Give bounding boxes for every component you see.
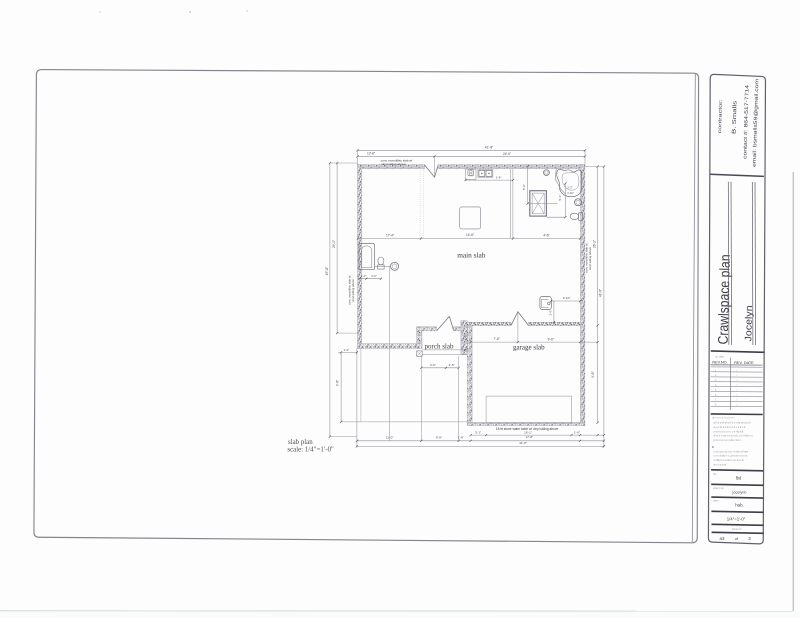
svg-text:11′-0″: 11′-0″ <box>386 435 395 439</box>
svg-text:no. date: no. date <box>715 355 725 358</box>
svg-text:1′-2″: 1′-2″ <box>361 274 367 278</box>
svg-text:17′-8″: 17′-8″ <box>525 435 534 439</box>
svg-text:1′-10″: 1′-10″ <box>567 191 574 195</box>
svg-text:a n y w o rk .: a n y w o rk . <box>714 463 728 466</box>
svg-text:2′-2″: 2′-2″ <box>371 274 377 278</box>
svg-text:4′-6″: 4′-6″ <box>430 363 436 367</box>
svg-text:1′-6″: 1′-6″ <box>463 335 467 340</box>
svg-text:a ll w o rk sh a ll c o n fo: a ll w o rk sh a ll c o n fo rm to a ll <box>714 422 751 425</box>
svg-text:3′-10″: 3′-10″ <box>563 296 571 300</box>
svg-text:hab.: hab. <box>735 503 744 508</box>
svg-text:3.: 3. <box>715 379 717 382</box>
svg-text:26′-1″: 26′-1″ <box>593 239 597 248</box>
svg-text:main slab: main slab <box>457 250 486 259</box>
svg-text:4′-6″: 4′-6″ <box>543 234 550 238</box>
svg-text:a p p lic a b le c o d e s a: a p p lic a b le c o d e s a n d <box>714 426 746 429</box>
svg-text:14′-6″: 14′-6″ <box>466 233 475 237</box>
svg-text:vinyl siding above: vinyl siding above <box>381 162 406 166</box>
svg-text:contractor:: contractor: <box>717 99 723 133</box>
svg-text:Crawlspace plan: Crawlspace plan <box>715 254 733 344</box>
svg-text:5′-8″: 5′-8″ <box>436 436 443 440</box>
svg-text:9′-8″: 9′-8″ <box>591 371 595 378</box>
svg-text:REV. DATE: REV. DATE <box>734 361 754 365</box>
svg-text:5′-0″: 5′-0″ <box>522 184 526 190</box>
svg-text:3: 3 <box>748 536 751 541</box>
svg-text:1′-2″: 1′-2″ <box>344 348 350 352</box>
svg-text:draw n by :: draw n by : <box>713 487 725 490</box>
svg-text:2′-2″: 2′-2″ <box>567 185 572 189</box>
svg-text:7.: 7. <box>715 399 717 402</box>
svg-text:1′-6″: 1′-6″ <box>458 436 465 440</box>
svg-text:4.: 4. <box>715 384 717 387</box>
svg-text:41′-8″: 41′-8″ <box>485 146 494 150</box>
svg-text:17′-4″: 17′-4″ <box>386 234 395 238</box>
svg-text:g e n e r a l n o t e s :: g e n e r a l n o t e s : <box>713 417 736 420</box>
svg-text:8.: 8. <box>715 404 717 407</box>
svg-text:5.: 5. <box>715 389 717 392</box>
svg-text:41′-8″: 41′-8″ <box>599 288 603 297</box>
svg-text:9′-8″: 9′-8″ <box>336 379 340 386</box>
svg-text:sheet no.: sheet no. <box>732 528 743 531</box>
svg-text:47′-8″: 47′-8″ <box>325 266 329 275</box>
svg-text:Jocelyn: Jocelyn <box>743 305 755 341</box>
svg-text:1′-6″: 1′-6″ <box>496 175 502 179</box>
svg-text:REV.NO.: REV.NO. <box>712 360 727 364</box>
svg-text:B. Smalls: B. Smalls <box>731 101 738 135</box>
svg-text:o rd in a n c e s. v e rify a: o rd in a n c e s. v e rify a ll <box>714 430 744 433</box>
svg-text:vinyl siding above: vinyl siding above <box>588 247 592 270</box>
svg-text:lbd: lbd <box>736 476 742 481</box>
svg-text:1/4″=1′-0″: 1/4″=1′-0″ <box>727 517 746 522</box>
svg-text:3′-1″: 3′-1″ <box>475 430 481 434</box>
svg-text:a3: a3 <box>719 536 725 541</box>
svg-text:24′-0″: 24′-0″ <box>503 152 512 156</box>
svg-text:p rio r to c o n stru c tio n: p rio r to c o n stru c tio n . <box>714 439 743 442</box>
svg-text:file :: file : <box>713 473 718 476</box>
svg-text:9′-6″: 9′-6″ <box>548 338 555 342</box>
svg-text:29′-1″: 29′-1″ <box>332 239 336 248</box>
svg-text:date :: date : <box>713 500 719 503</box>
svg-text:41′-8″: 41′-8″ <box>519 441 528 445</box>
svg-text:a: a <box>712 445 714 449</box>
svg-text:5′-1″: 5′-1″ <box>558 195 562 201</box>
svg-text:1.: 1. <box>715 369 717 372</box>
svg-text:slab plan: slab plan <box>288 439 313 446</box>
svg-text:6.: 6. <box>715 394 717 397</box>
svg-text:c o n tra c to r to v e rify: c o n tra c to r to v e rify a ll site <box>714 450 749 453</box>
svg-text:vinyl siding above: vinyl siding above <box>351 279 355 302</box>
svg-text:u tility lo c a tio n s p rio: u tility lo c a tio n s p rio r to <box>714 459 745 462</box>
svg-text:16′-1″: 16′-1″ <box>524 430 532 434</box>
svg-text:2′-6″: 2′-6″ <box>449 363 455 367</box>
svg-text:2′-6″: 2′-6″ <box>549 310 553 316</box>
svg-text:d im e n sio n s a n d c o n: d im e n sio n s a n d c o n d itio n s <box>714 435 754 438</box>
svg-text:2.: 2. <box>715 374 717 377</box>
svg-text:13′-8″: 13′-8″ <box>367 152 376 156</box>
svg-text:c o n d itio n s, g ra d e s a: c o n d itio n s, g ra d e s a n d <box>714 455 748 458</box>
svg-text:porch slab: porch slab <box>425 342 454 350</box>
svg-text:scale: 1/4″=1′-0″: scale: 1/4″=1′-0″ <box>287 446 334 453</box>
svg-text:7′-6″: 7′-6″ <box>493 337 500 341</box>
svg-text:jocelynb: jocelynb <box>732 491 747 495</box>
svg-text:garage slab: garage slab <box>513 344 545 352</box>
svg-text:1′-6″: 1′-6″ <box>574 430 580 434</box>
